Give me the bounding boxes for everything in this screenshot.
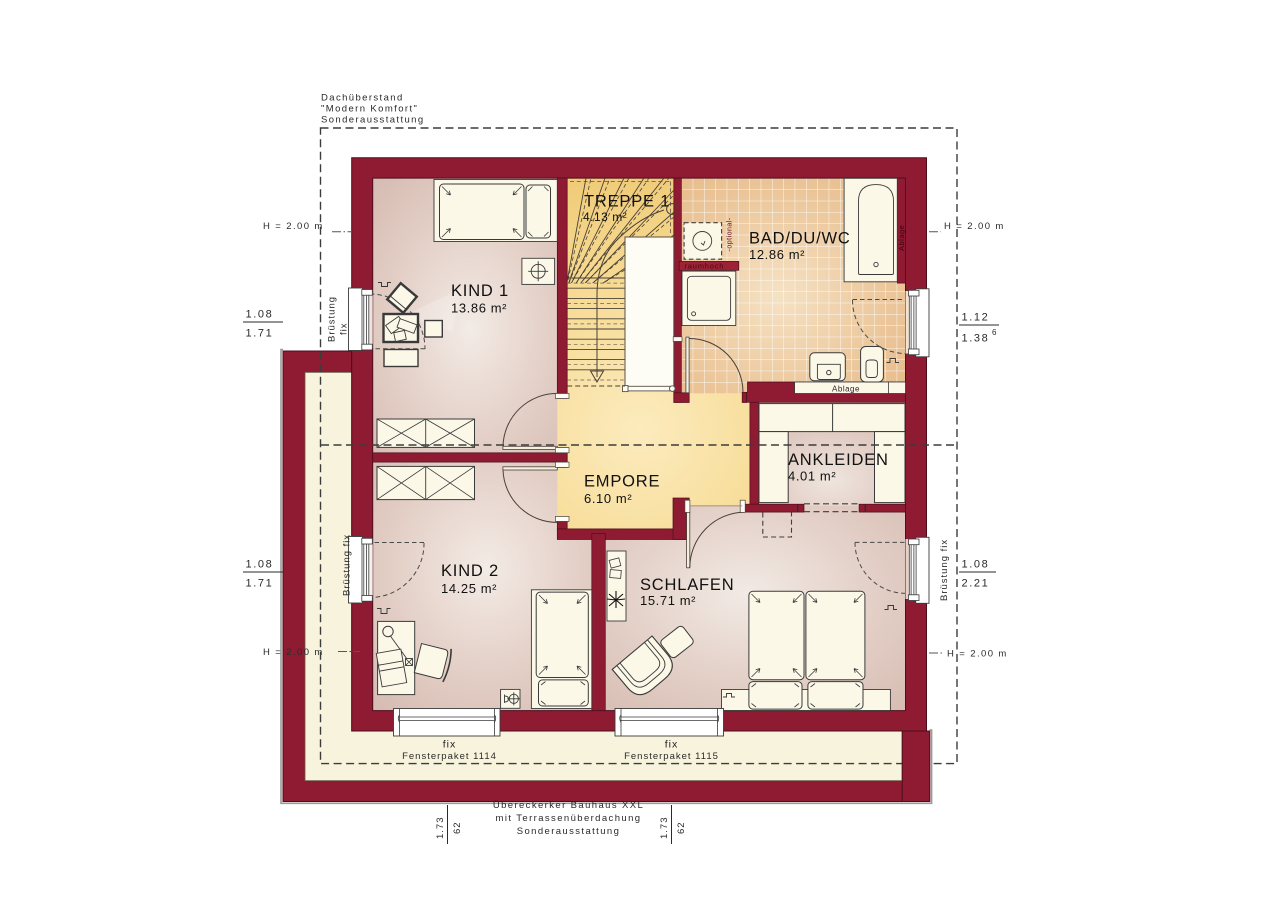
svg-text:raumhoch: raumhoch [685,262,725,271]
svg-text:1.08: 1.08 [246,559,274,571]
svg-text:H = 2.00 m: H = 2.00 m [947,649,1008,660]
svg-text:6: 6 [992,328,997,337]
svg-text:1.08: 1.08 [246,309,274,321]
svg-text:ANKLEIDEN: ANKLEIDEN [788,451,889,469]
svg-text:Brüstung: Brüstung [327,296,338,342]
svg-text:H = 2.00 m: H = 2.00 m [944,221,1005,232]
svg-text:1.73: 1.73 [435,817,446,840]
svg-text:BAD/DU/WC: BAD/DU/WC [749,230,851,248]
svg-text:"Modern Komfort": "Modern Komfort" [321,104,418,115]
svg-text:fix: fix [339,323,350,336]
svg-text:SCHLAFEN: SCHLAFEN [640,576,734,594]
svg-text:Übereckerker Bauhaus XXL: Übereckerker Bauhaus XXL [493,800,644,811]
svg-text:1.12: 1.12 [962,312,990,324]
svg-text:1.71: 1.71 [246,578,274,590]
svg-text:-optional-: -optional- [727,217,734,251]
svg-text:1.71: 1.71 [246,328,274,340]
svg-text:H = 2.00 m: H = 2.00 m [263,221,324,232]
svg-text:62: 62 [676,821,687,834]
svg-text:13.86 m²: 13.86 m² [451,301,507,316]
svg-text:Ablage: Ablage [897,225,906,251]
svg-text:1.08: 1.08 [962,559,990,571]
svg-text:6.10 m²: 6.10 m² [584,491,632,506]
svg-text:KIND 2: KIND 2 [441,562,499,580]
svg-text:4.01 m²: 4.01 m² [788,469,836,484]
svg-text:1.38: 1.38 [962,333,990,345]
svg-text:KIND 1: KIND 1 [451,282,509,300]
svg-text:mit Terrassenüberdachung: mit Terrassenüberdachung [496,813,642,824]
svg-text:62: 62 [452,821,463,834]
svg-text:Ablage: Ablage [832,384,860,393]
svg-text:Brüstung fix: Brüstung fix [342,534,353,596]
svg-text:Sonderausstattung: Sonderausstattung [517,826,621,837]
svg-text:2.21: 2.21 [962,578,990,590]
svg-text:14.25 m²: 14.25 m² [441,581,497,596]
svg-text:1.73: 1.73 [659,817,670,840]
svg-text:Fensterpaket 1115: Fensterpaket 1115 [624,751,719,762]
svg-text:15.71 m²: 15.71 m² [640,593,696,608]
svg-text:fix: fix [665,739,679,751]
svg-text:12.86 m²: 12.86 m² [749,247,805,262]
svg-text:4.13 m²: 4.13 m² [583,210,627,224]
svg-text:EMPORE: EMPORE [584,473,660,491]
svg-text:Fensterpaket 1114: Fensterpaket 1114 [402,751,497,762]
svg-text:Sonderausstattung: Sonderausstattung [321,115,425,126]
svg-text:TREPPE 1: TREPPE 1 [584,193,670,211]
svg-text:fix: fix [443,739,457,751]
svg-text:Dachüberstand: Dachüberstand [321,93,404,104]
svg-text:H = 2.00 m: H = 2.00 m [263,647,324,658]
svg-text:Brüstung fix: Brüstung fix [939,539,950,601]
